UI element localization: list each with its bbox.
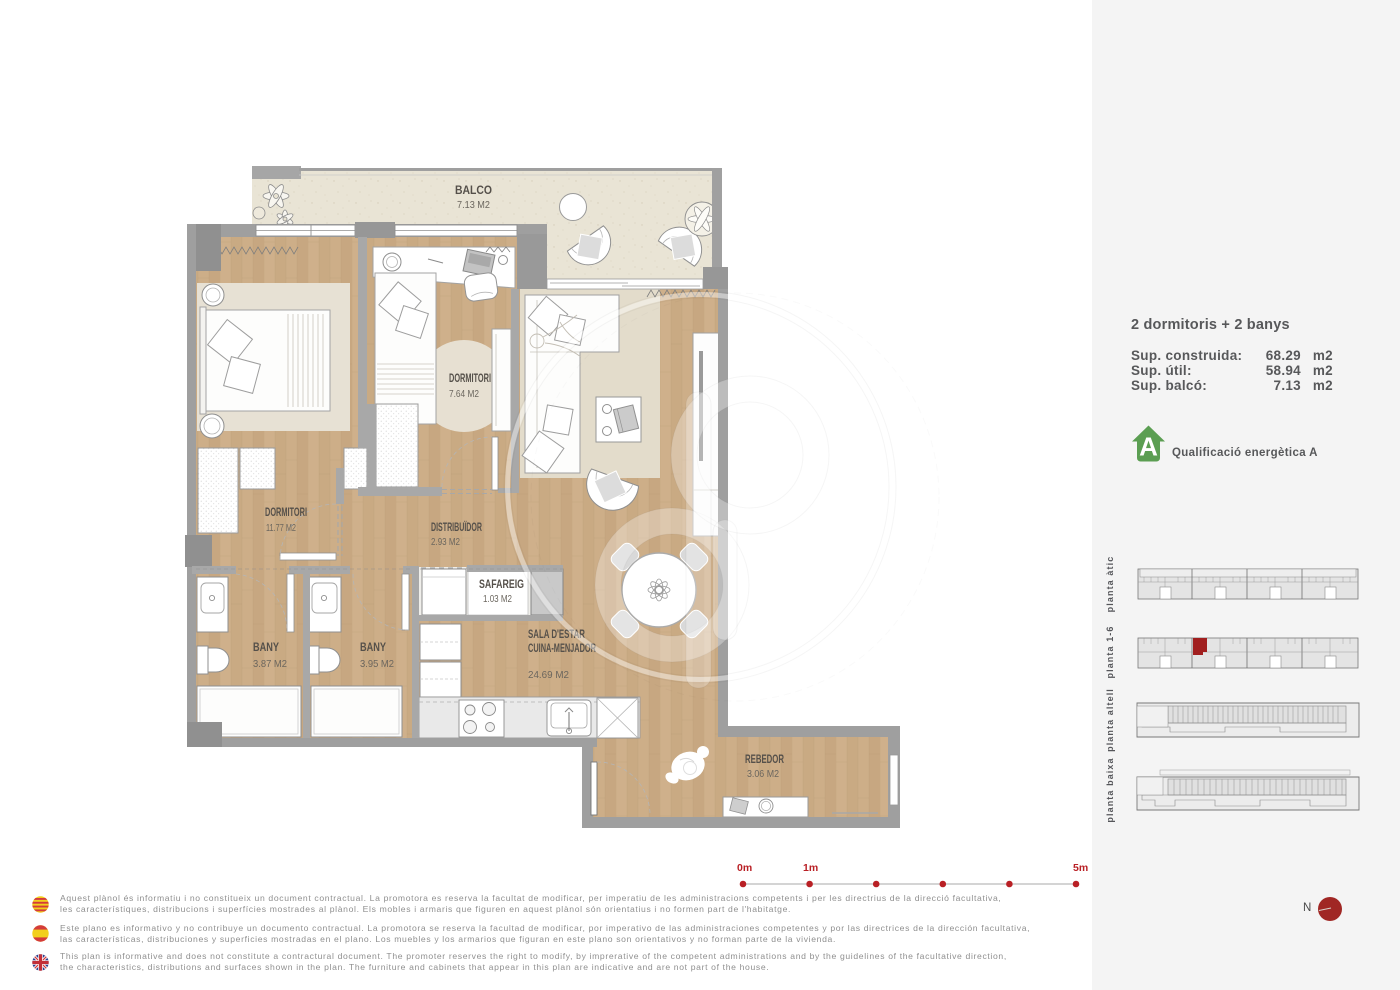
svg-text:DISTRIBUÏDOR: DISTRIBUÏDOR <box>431 521 482 534</box>
svg-text:planta altell: planta altell <box>1105 688 1115 752</box>
svg-text:BALCO: BALCO <box>455 183 492 197</box>
svg-text:7.64 M2: 7.64 M2 <box>449 388 479 400</box>
svg-text:11.77 M2: 11.77 M2 <box>266 522 296 534</box>
svg-text:DORMITORI: DORMITORI <box>449 373 491 385</box>
svg-text:7.13 M2: 7.13 M2 <box>457 199 490 211</box>
svg-text:REBEDOR: REBEDOR <box>745 754 784 766</box>
svg-text:5m: 5m <box>1073 862 1088 874</box>
svg-text:1m: 1m <box>803 862 818 874</box>
svg-text:0m: 0m <box>737 862 752 874</box>
svg-text:BANY: BANY <box>360 642 386 654</box>
svg-text:planta 1-6: planta 1-6 <box>1105 625 1115 678</box>
svg-text:3.87 M2: 3.87 M2 <box>253 658 287 670</box>
svg-text:3.95 M2: 3.95 M2 <box>360 658 394 670</box>
svg-text:DORMITORI: DORMITORI <box>265 507 307 519</box>
svg-text:24.69 M2: 24.69 M2 <box>528 669 569 681</box>
svg-text:3.06 M2: 3.06 M2 <box>747 768 779 780</box>
svg-text:A: A <box>1139 432 1158 462</box>
svg-text:2.93 M2: 2.93 M2 <box>431 536 460 548</box>
svg-text:SAFAREIG: SAFAREIG <box>479 579 524 591</box>
svg-text:planta àtic: planta àtic <box>1105 556 1115 613</box>
svg-text:BANY: BANY <box>253 642 279 654</box>
svg-text:planta baixa: planta baixa <box>1105 757 1115 822</box>
svg-text:1.03 M2: 1.03 M2 <box>483 593 512 605</box>
